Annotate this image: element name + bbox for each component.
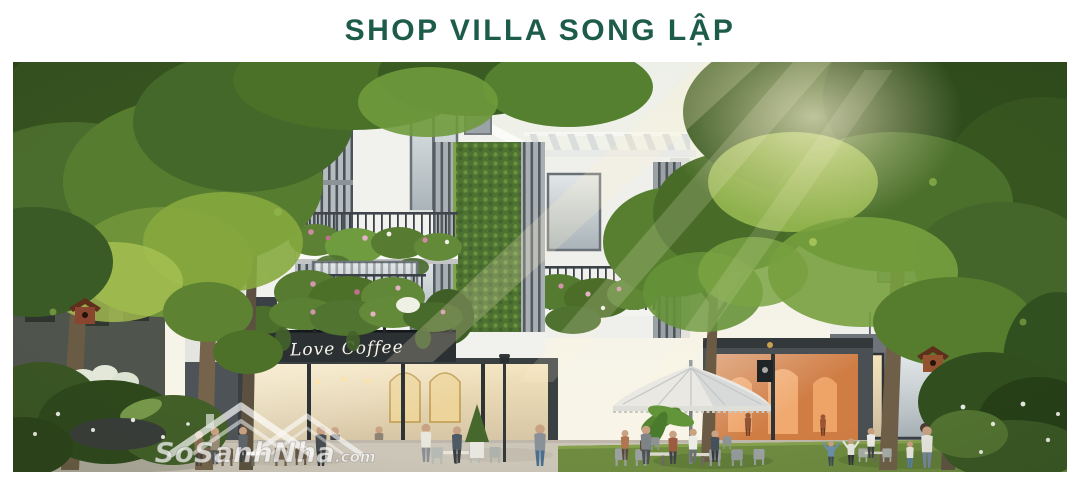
property-photo[interactable]: Love Coffee — [13, 62, 1067, 472]
page-title: SHOP VILLA SONG LẬP — [345, 14, 736, 48]
vignette — [13, 62, 1067, 472]
page: SHOP VILLA SONG LẬP — [0, 0, 1080, 480]
villa-rendering: Love Coffee — [13, 62, 1067, 472]
page-header: SHOP VILLA SONG LẬP — [0, 0, 1080, 62]
